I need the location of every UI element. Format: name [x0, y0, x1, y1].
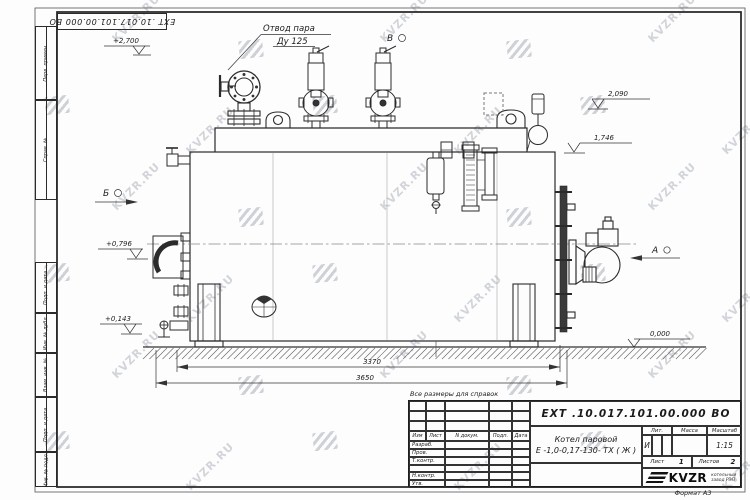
reference-note: Все размеры для справок	[410, 390, 498, 398]
margin-col-label: Инв. № дубл.	[43, 316, 49, 350]
margin-col-perv-primen: Перв. примен.	[35, 26, 57, 100]
margin-col-label: Взам. инв. №	[43, 358, 49, 392]
margin-col-inv-podl: Инв. № подл.	[35, 452, 57, 487]
sheet-cell: Лист 1	[642, 456, 692, 468]
kvzr-coil-icon	[644, 472, 668, 485]
massa-value	[672, 435, 707, 456]
lit-header: Лит.	[642, 426, 672, 435]
title-block: Изм Лист N докум. Подп. Дата Разраб. Про…	[408, 400, 741, 487]
margin-col-vzam-inv: Взам. инв. №	[35, 353, 57, 397]
empty-cell	[530, 463, 642, 488]
row-tkontr: Т.контр.	[409, 457, 445, 465]
row-utv: Утв.	[409, 480, 445, 488]
col-izm: Изм	[409, 431, 426, 441]
signature-rows: Разраб. Пров. Т.контр. Н.контр. Утв.	[409, 441, 530, 488]
product-name-line2: Е -1,0-0,17-130- ТХ ( Ж )	[536, 445, 636, 456]
drawing-sheet: KVZR.RUKVZR.RUKVZR.RUKVZR.RUKVZR.RUKVZR.…	[0, 0, 750, 500]
product-name-line1: Котел паровой	[555, 434, 618, 445]
masshtab-header: Масштаб	[707, 426, 742, 435]
margin-col-label: Перв. примен.	[43, 44, 49, 82]
product-name: Котел паровой Е -1,0-0,17-130- ТХ ( Ж )	[530, 426, 642, 463]
sheet-value: 1	[679, 458, 684, 466]
col-data: Дата	[512, 431, 530, 441]
col-ndoc: N докум.	[445, 431, 489, 441]
format-label: Формат А3	[648, 489, 738, 497]
annotation-layer: ЕХТ .10.017.101.00.000 ВО Перв. примен. …	[0, 0, 750, 500]
row-prov: Пров.	[409, 449, 445, 457]
col-list: Лист	[426, 431, 445, 441]
col-podp: Подп.	[489, 431, 512, 441]
company-logo-cell: KVZR котельный завод РЭП	[642, 468, 742, 488]
lit-cell-2	[652, 435, 662, 456]
margin-col-podp-data-1: Подп. и дата	[35, 262, 57, 313]
revision-header: Изм Лист N докум. Подп. Дата	[409, 431, 530, 441]
lit-cell-3	[662, 435, 672, 456]
margin-col-label: Подп. и дата	[43, 270, 49, 304]
sheet-label: Лист	[650, 459, 664, 465]
sheets-value: 2	[730, 458, 735, 466]
margin-col-sprav-no: Справ. №	[35, 100, 57, 200]
lit-value: И	[642, 435, 652, 456]
row-nkontr: Н.контр.	[409, 472, 445, 480]
margin-col-label: Справ. №	[43, 138, 49, 162]
row-razrab: Разраб.	[409, 441, 445, 449]
masshtab-value: 1:15	[707, 435, 742, 456]
sheets-cell: Листов 2	[692, 456, 742, 468]
margin-col-podp-data-2: Подп. и дата	[35, 397, 57, 452]
logo-sub2: завод РЭП	[711, 478, 736, 483]
margin-col-inv-dubl: Инв. № дубл.	[35, 313, 57, 353]
revision-grid	[409, 401, 530, 431]
top-reversed-stamp: ЕХТ .10.017.101.00.000 ВО	[57, 13, 167, 30]
sheets-label: Листов	[699, 459, 720, 465]
top-stamp-designation: ЕХТ .10.017.101.00.000 ВО	[49, 17, 175, 26]
massa-header: Масса	[672, 426, 707, 435]
kvzr-logo-text: KVZR	[669, 471, 708, 485]
margin-col-label: Подп. и дата	[43, 407, 49, 441]
kvzr-logo-subtext: котельный завод РЭП	[711, 473, 736, 483]
margin-col-label: Инв. № подл.	[43, 452, 49, 487]
document-designation: ЕХТ .10.017.101.00.000 ВО	[530, 401, 742, 426]
